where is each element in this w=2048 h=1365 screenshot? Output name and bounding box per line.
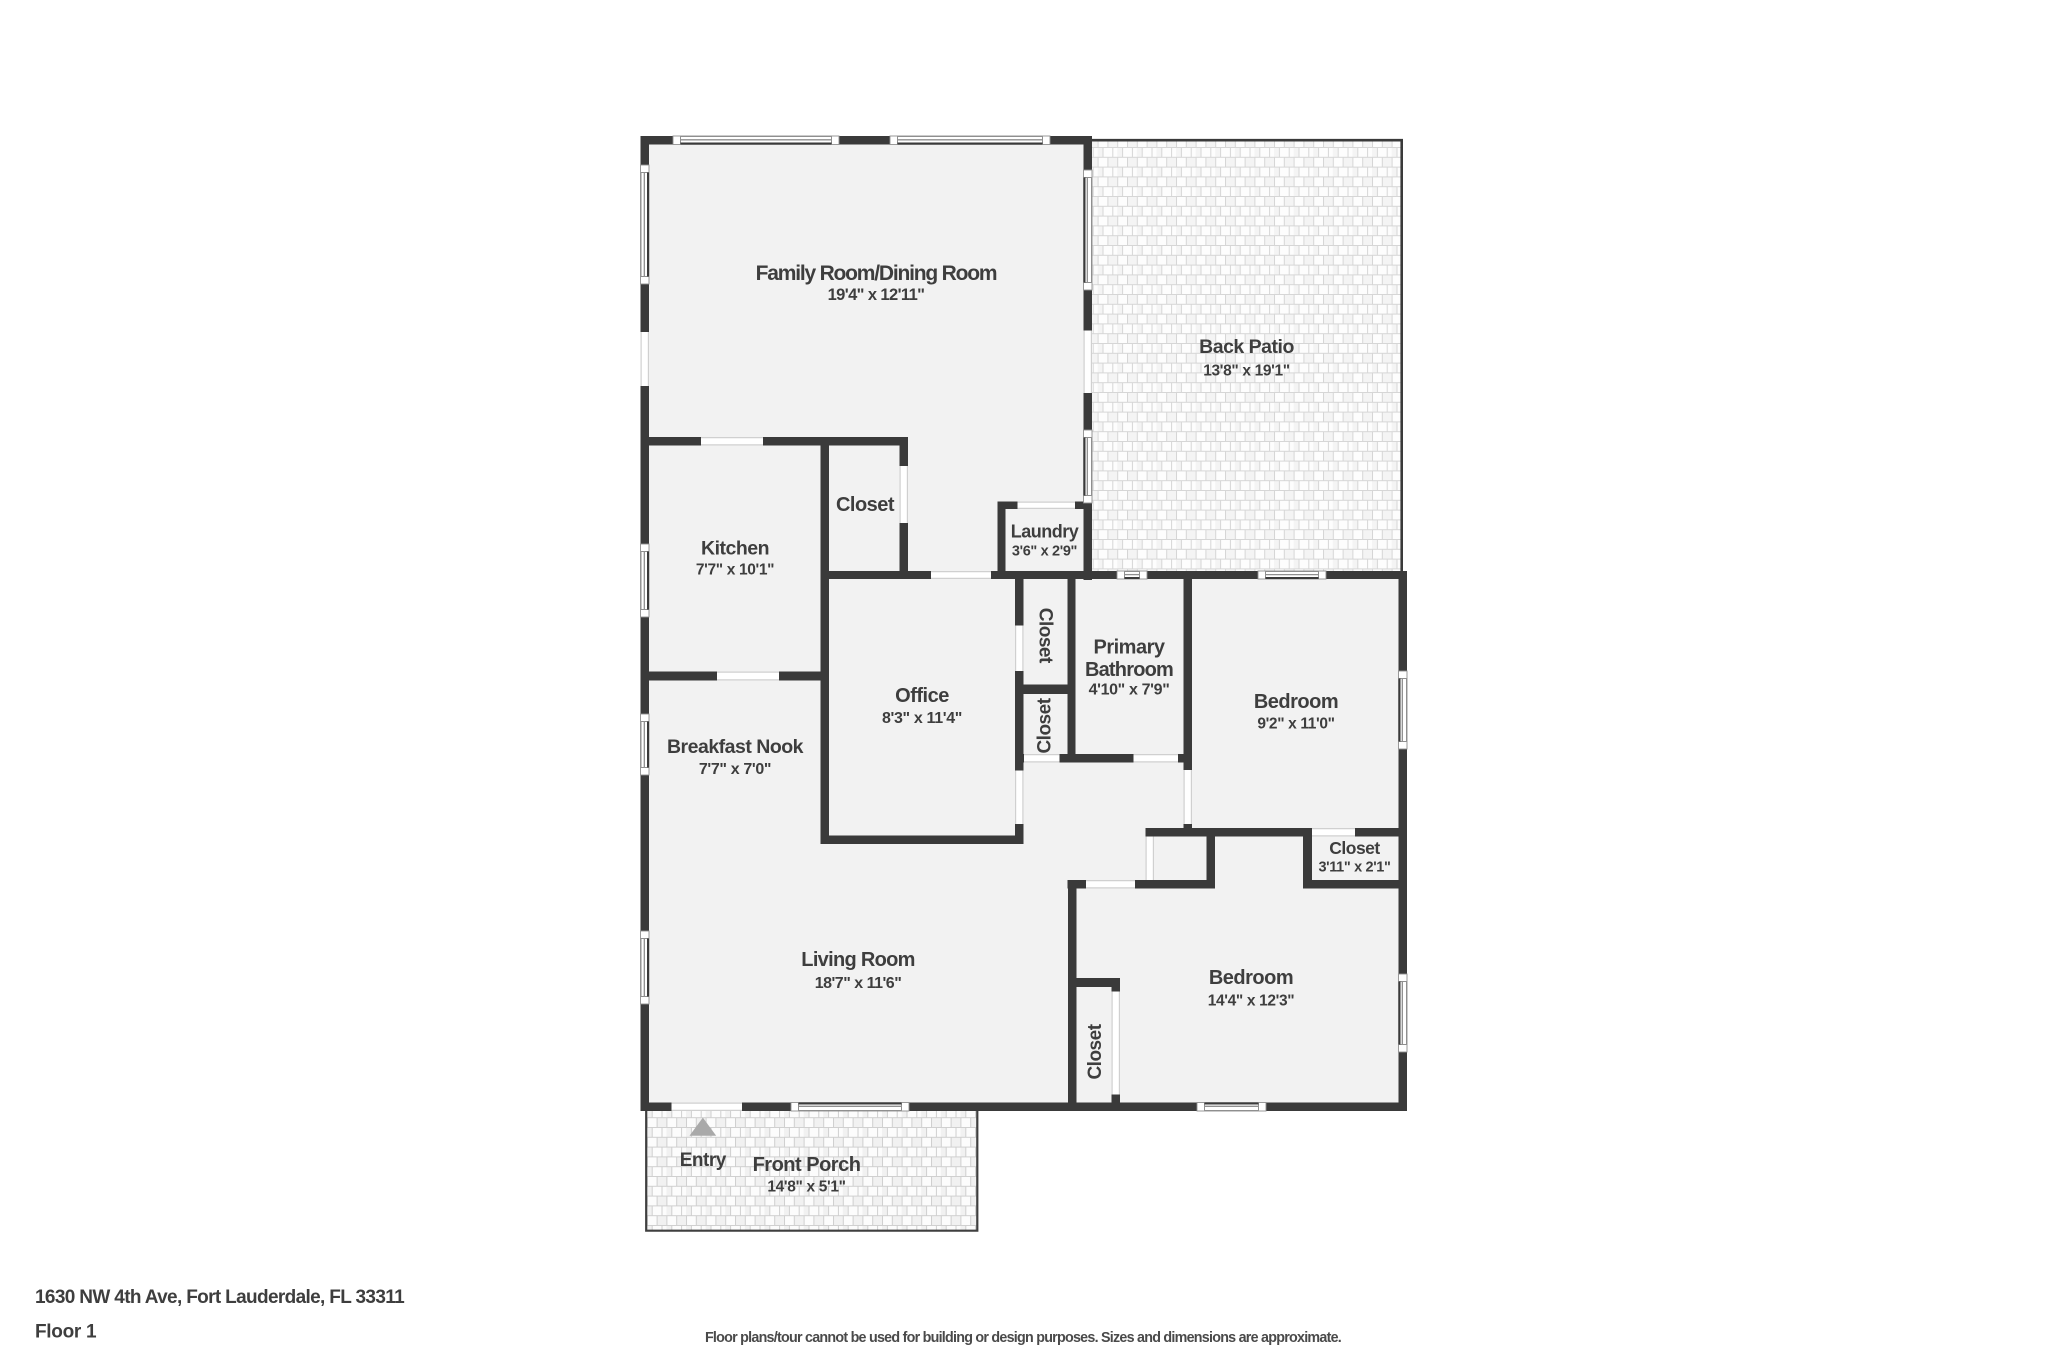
- svg-text:Living Room: Living Room: [801, 949, 914, 971]
- svg-text:13'8" x 19'1": 13'8" x 19'1": [1203, 363, 1289, 380]
- svg-text:14'8" x 5'1": 14'8" x 5'1": [767, 1179, 845, 1196]
- svg-text:Front Porch: Front Porch: [753, 1154, 861, 1176]
- svg-text:19'4" x 12'11": 19'4" x 12'11": [828, 286, 925, 304]
- svg-text:4'10" x 7'9": 4'10" x 7'9": [1089, 682, 1170, 699]
- svg-text:Kitchen: Kitchen: [701, 538, 769, 560]
- svg-text:Closet: Closet: [836, 494, 895, 516]
- svg-text:7'7" x 7'0": 7'7" x 7'0": [699, 761, 771, 778]
- svg-text:Closet: Closet: [1035, 608, 1056, 664]
- svg-text:8'3" x 11'4": 8'3" x 11'4": [882, 710, 962, 727]
- svg-text:Closet: Closet: [1035, 697, 1056, 753]
- svg-text:Entry: Entry: [680, 1150, 727, 1171]
- svg-text:Back Patio: Back Patio: [1199, 336, 1294, 358]
- svg-text:7'7" x 10'1": 7'7" x 10'1": [696, 562, 774, 579]
- svg-text:3'6" x 2'9": 3'6" x 2'9": [1012, 544, 1077, 560]
- svg-text:Bedroom: Bedroom: [1254, 691, 1338, 713]
- svg-text:Laundry: Laundry: [1011, 522, 1079, 542]
- svg-text:Floor 1: Floor 1: [35, 1322, 97, 1343]
- svg-text:Floor plans/tour cannot be use: Floor plans/tour cannot be used for buil…: [705, 1330, 1341, 1346]
- svg-text:Closet: Closet: [1329, 838, 1380, 858]
- svg-text:1630 NW 4th Ave, Fort Lauderda: 1630 NW 4th Ave, Fort Lauderdale, FL 333…: [35, 1287, 405, 1308]
- svg-text:14'4" x 12'3": 14'4" x 12'3": [1208, 993, 1294, 1010]
- svg-text:Primary: Primary: [1094, 637, 1166, 659]
- svg-text:9'2" x 11'0": 9'2" x 11'0": [1257, 716, 1334, 733]
- svg-text:Bedroom: Bedroom: [1209, 967, 1293, 989]
- svg-text:Closet: Closet: [1085, 1023, 1106, 1079]
- svg-text:18'7" x 11'6": 18'7" x 11'6": [815, 975, 902, 992]
- svg-text:Family Room/Dining Room: Family Room/Dining Room: [756, 262, 997, 285]
- svg-text:Bathroom: Bathroom: [1085, 659, 1173, 681]
- svg-text:Office: Office: [895, 685, 949, 707]
- svg-text:3'11" x 2'1": 3'11" x 2'1": [1318, 860, 1390, 876]
- svg-text:Breakfast Nook: Breakfast Nook: [667, 736, 804, 758]
